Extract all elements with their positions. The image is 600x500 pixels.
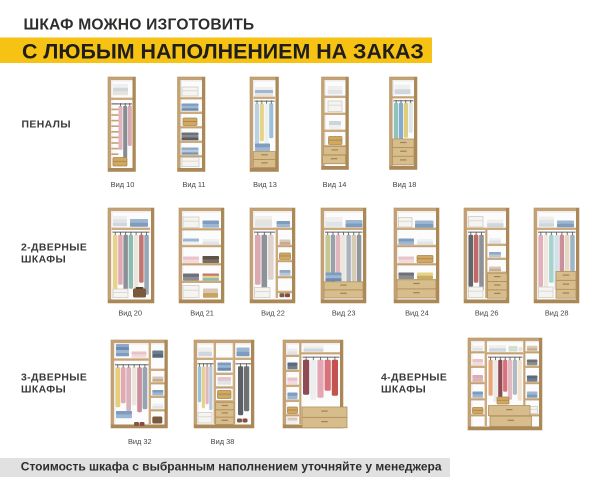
svg-text:ШКАФЫ: ШКАФЫ <box>21 255 66 266</box>
svg-text:Вид 11: Вид 11 <box>182 180 205 189</box>
svg-text:ПЕНАЛЫ: ПЕНАЛЫ <box>22 120 71 131</box>
svg-text:Вид 32: Вид 32 <box>128 437 152 446</box>
svg-text:Вид 23: Вид 23 <box>332 308 356 317</box>
svg-text:Вид 10: Вид 10 <box>111 180 135 189</box>
svg-text:Вид 22: Вид 22 <box>261 308 285 317</box>
svg-text:3-ДВЕРНЫЕ: 3-ДВЕРНЫЕ <box>21 373 87 384</box>
svg-text:Вид 24: Вид 24 <box>405 308 429 317</box>
svg-text:ШКАФЫ: ШКАФЫ <box>21 385 66 396</box>
svg-text:ШКАФЫ: ШКАФЫ <box>381 385 426 396</box>
svg-text:ШКАФ МОЖНО ИЗГОТОВИТЬ: ШКАФ МОЖНО ИЗГОТОВИТЬ <box>24 17 255 34</box>
svg-text:Вид 20: Вид 20 <box>118 308 142 317</box>
svg-text:Вид 14: Вид 14 <box>323 180 347 189</box>
svg-text:С ЛЮБЫМ НАПОЛНЕНИЕМ НА ЗАКАЗ: С ЛЮБЫМ НАПОЛНЕНИЕМ НА ЗАКАЗ <box>22 39 424 63</box>
svg-text:Стоимость шкафа с выбранным на: Стоимость шкафа с выбранным наполнением … <box>21 460 442 474</box>
svg-text:Вид 28: Вид 28 <box>545 308 569 317</box>
svg-text:Вид 13: Вид 13 <box>253 180 277 189</box>
svg-text:Вид 38: Вид 38 <box>211 437 235 446</box>
svg-text:Вид 18: Вид 18 <box>393 180 417 189</box>
svg-text:Вид 21: Вид 21 <box>190 308 214 317</box>
svg-text:4-ДВЕРНЫЕ: 4-ДВЕРНЫЕ <box>381 373 447 384</box>
svg-text:2-ДВЕРНЫЕ: 2-ДВЕРНЫЕ <box>21 243 87 254</box>
svg-text:Вид 26: Вид 26 <box>475 308 499 317</box>
